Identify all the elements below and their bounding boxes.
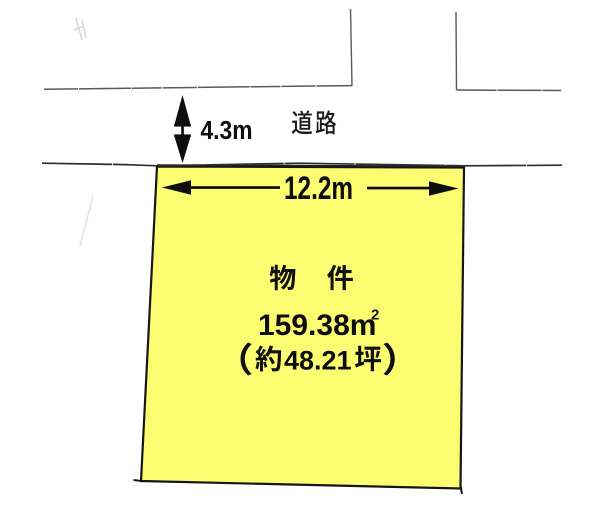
- svg-text:48.21: 48.21: [284, 346, 352, 376]
- svg-text:12.2m: 12.2m: [284, 170, 353, 206]
- svg-text:159.38m: 159.38m: [258, 309, 376, 342]
- svg-text:4.3m: 4.3m: [201, 117, 253, 145]
- svg-text:2: 2: [371, 307, 379, 324]
